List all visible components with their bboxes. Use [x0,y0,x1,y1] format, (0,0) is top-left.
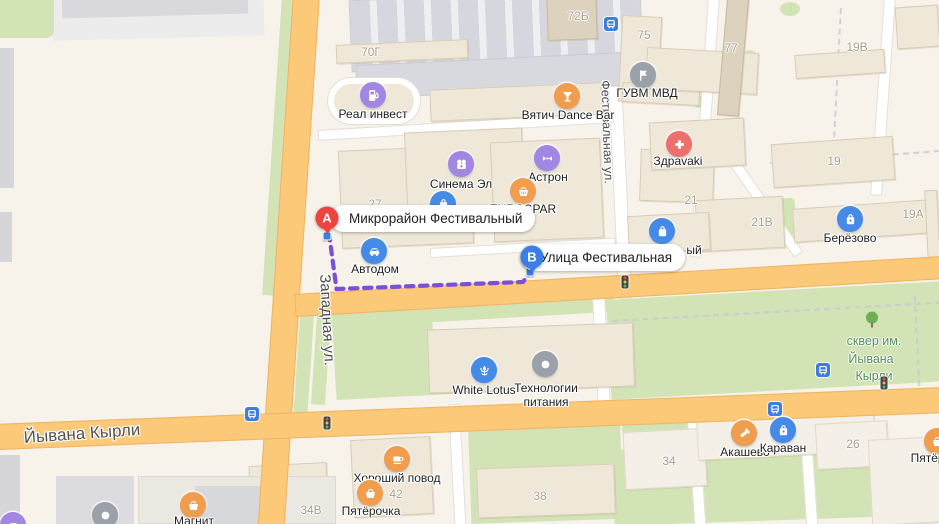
fuel-icon [366,88,381,103]
flower-icon [477,363,492,378]
poi-horoshiy-povod[interactable] [384,446,410,472]
dot-icon [98,508,113,523]
building-number: 75 [637,28,650,42]
building-number: 42 [389,487,402,501]
poi-unnamed-gray[interactable] [92,502,118,524]
bag-icon [655,224,670,239]
basket-icon [186,498,201,513]
poi-label-fragment: ый [686,243,701,257]
poi-label: Магнит [174,514,214,524]
poi-label: Синема Эл [430,177,492,191]
building [895,5,939,50]
movie-camera-icon [454,157,469,172]
tram-icon [818,365,828,375]
poi-berezovo[interactable] [837,206,863,232]
building [794,49,885,79]
bag-icon [6,518,21,524]
medical-cross-icon [672,137,687,152]
transport-stop-icon[interactable] [816,363,830,377]
dumbbell-icon [540,151,555,166]
transport-stop-icon[interactable] [604,17,618,31]
poi-real-invest[interactable] [360,82,386,108]
building [0,212,12,262]
building-number: 21 [684,193,697,207]
building [924,190,939,263]
poi-white-lotus[interactable] [471,357,497,383]
traffic-light-icon [622,276,629,289]
green-area [0,0,54,38]
route-label-a[interactable]: Микрорайон Фестивальный [330,205,535,232]
poi-eurospar[interactable] [510,178,536,204]
tree-icon [864,311,880,334]
poi-label: Реал инвест [339,107,408,121]
building-number: 21В [751,215,772,229]
building-number: 72Б [567,9,588,23]
poi-label: Астрон [528,170,567,184]
building [0,48,14,188]
poi-pyaterochka[interactable] [357,480,383,506]
bag-icon [843,212,858,227]
poi-label: Технологии питания [502,382,590,410]
route-marker-b[interactable]: B [521,246,544,269]
building-number: 34 [662,454,675,468]
poi-astron[interactable] [534,145,560,171]
traffic-light-icon [881,377,888,390]
route-label-b[interactable]: Улица Фестивальная [521,244,685,271]
poi-label: Вятич Dance Bar [522,108,615,122]
cocktail-icon [560,89,575,104]
poi-tehnologii-pitaniya[interactable] [532,351,558,377]
traffic-light-icon [324,417,331,430]
poi-label: Автодом [351,262,399,276]
building-number: 38 [533,489,546,503]
building-number: 19А [902,207,923,221]
coffee-cup-icon [390,452,405,467]
poi-label: Здраvaki [654,154,703,168]
basket-icon [516,184,531,199]
building-number: 26 [846,437,859,451]
poi-karavan[interactable] [770,417,796,443]
poi-avtodom[interactable] [361,238,387,264]
poi-label: Пятёрочка [342,504,401,518]
green-blob [780,2,800,16]
park-label: сквер им. [847,334,902,348]
green-area [332,313,436,392]
poi-vyatich-dance-bar[interactable] [554,83,580,109]
basket-icon [930,434,939,449]
poi-label: Караван [760,441,807,455]
transport-stop-icon[interactable] [245,407,259,421]
poi-label: Пятёрочка [911,451,939,465]
poi-cinema-el[interactable] [448,151,474,177]
tram-icon [770,404,780,414]
map-canvas[interactable]: Западная ул. Фестивальная ул. Йывана Кыр… [0,0,939,524]
car-icon [367,244,382,259]
building-number: 19В [846,40,867,54]
building-number: 70Г [361,45,381,59]
poi-unnamed-blue[interactable] [649,218,675,244]
marker-letter: A [322,211,331,226]
park-label: Йывана [848,352,893,366]
flag-icon [636,68,651,83]
tram-icon [606,19,616,29]
poi-guvm-mvd[interactable] [630,62,656,88]
route-marker-a[interactable]: A [316,207,339,230]
building-number: 77 [724,41,737,55]
tram-icon [247,409,257,419]
dot-icon [538,357,553,372]
street-label-zapadnaya: Западная ул. [316,274,338,366]
drumstick-icon [737,426,752,441]
basket-icon [363,486,378,501]
bag-icon [776,423,791,438]
poi-akashevo[interactable] [731,420,757,446]
building-number: 19 [827,154,840,168]
poi-label: Берёзово [824,231,877,245]
poi-label: ГУВМ МВД [616,86,677,100]
boundary-line [832,8,842,158]
transport-stop-icon[interactable] [768,402,782,416]
building-number: 34В [300,503,321,517]
marker-letter: B [527,250,536,265]
